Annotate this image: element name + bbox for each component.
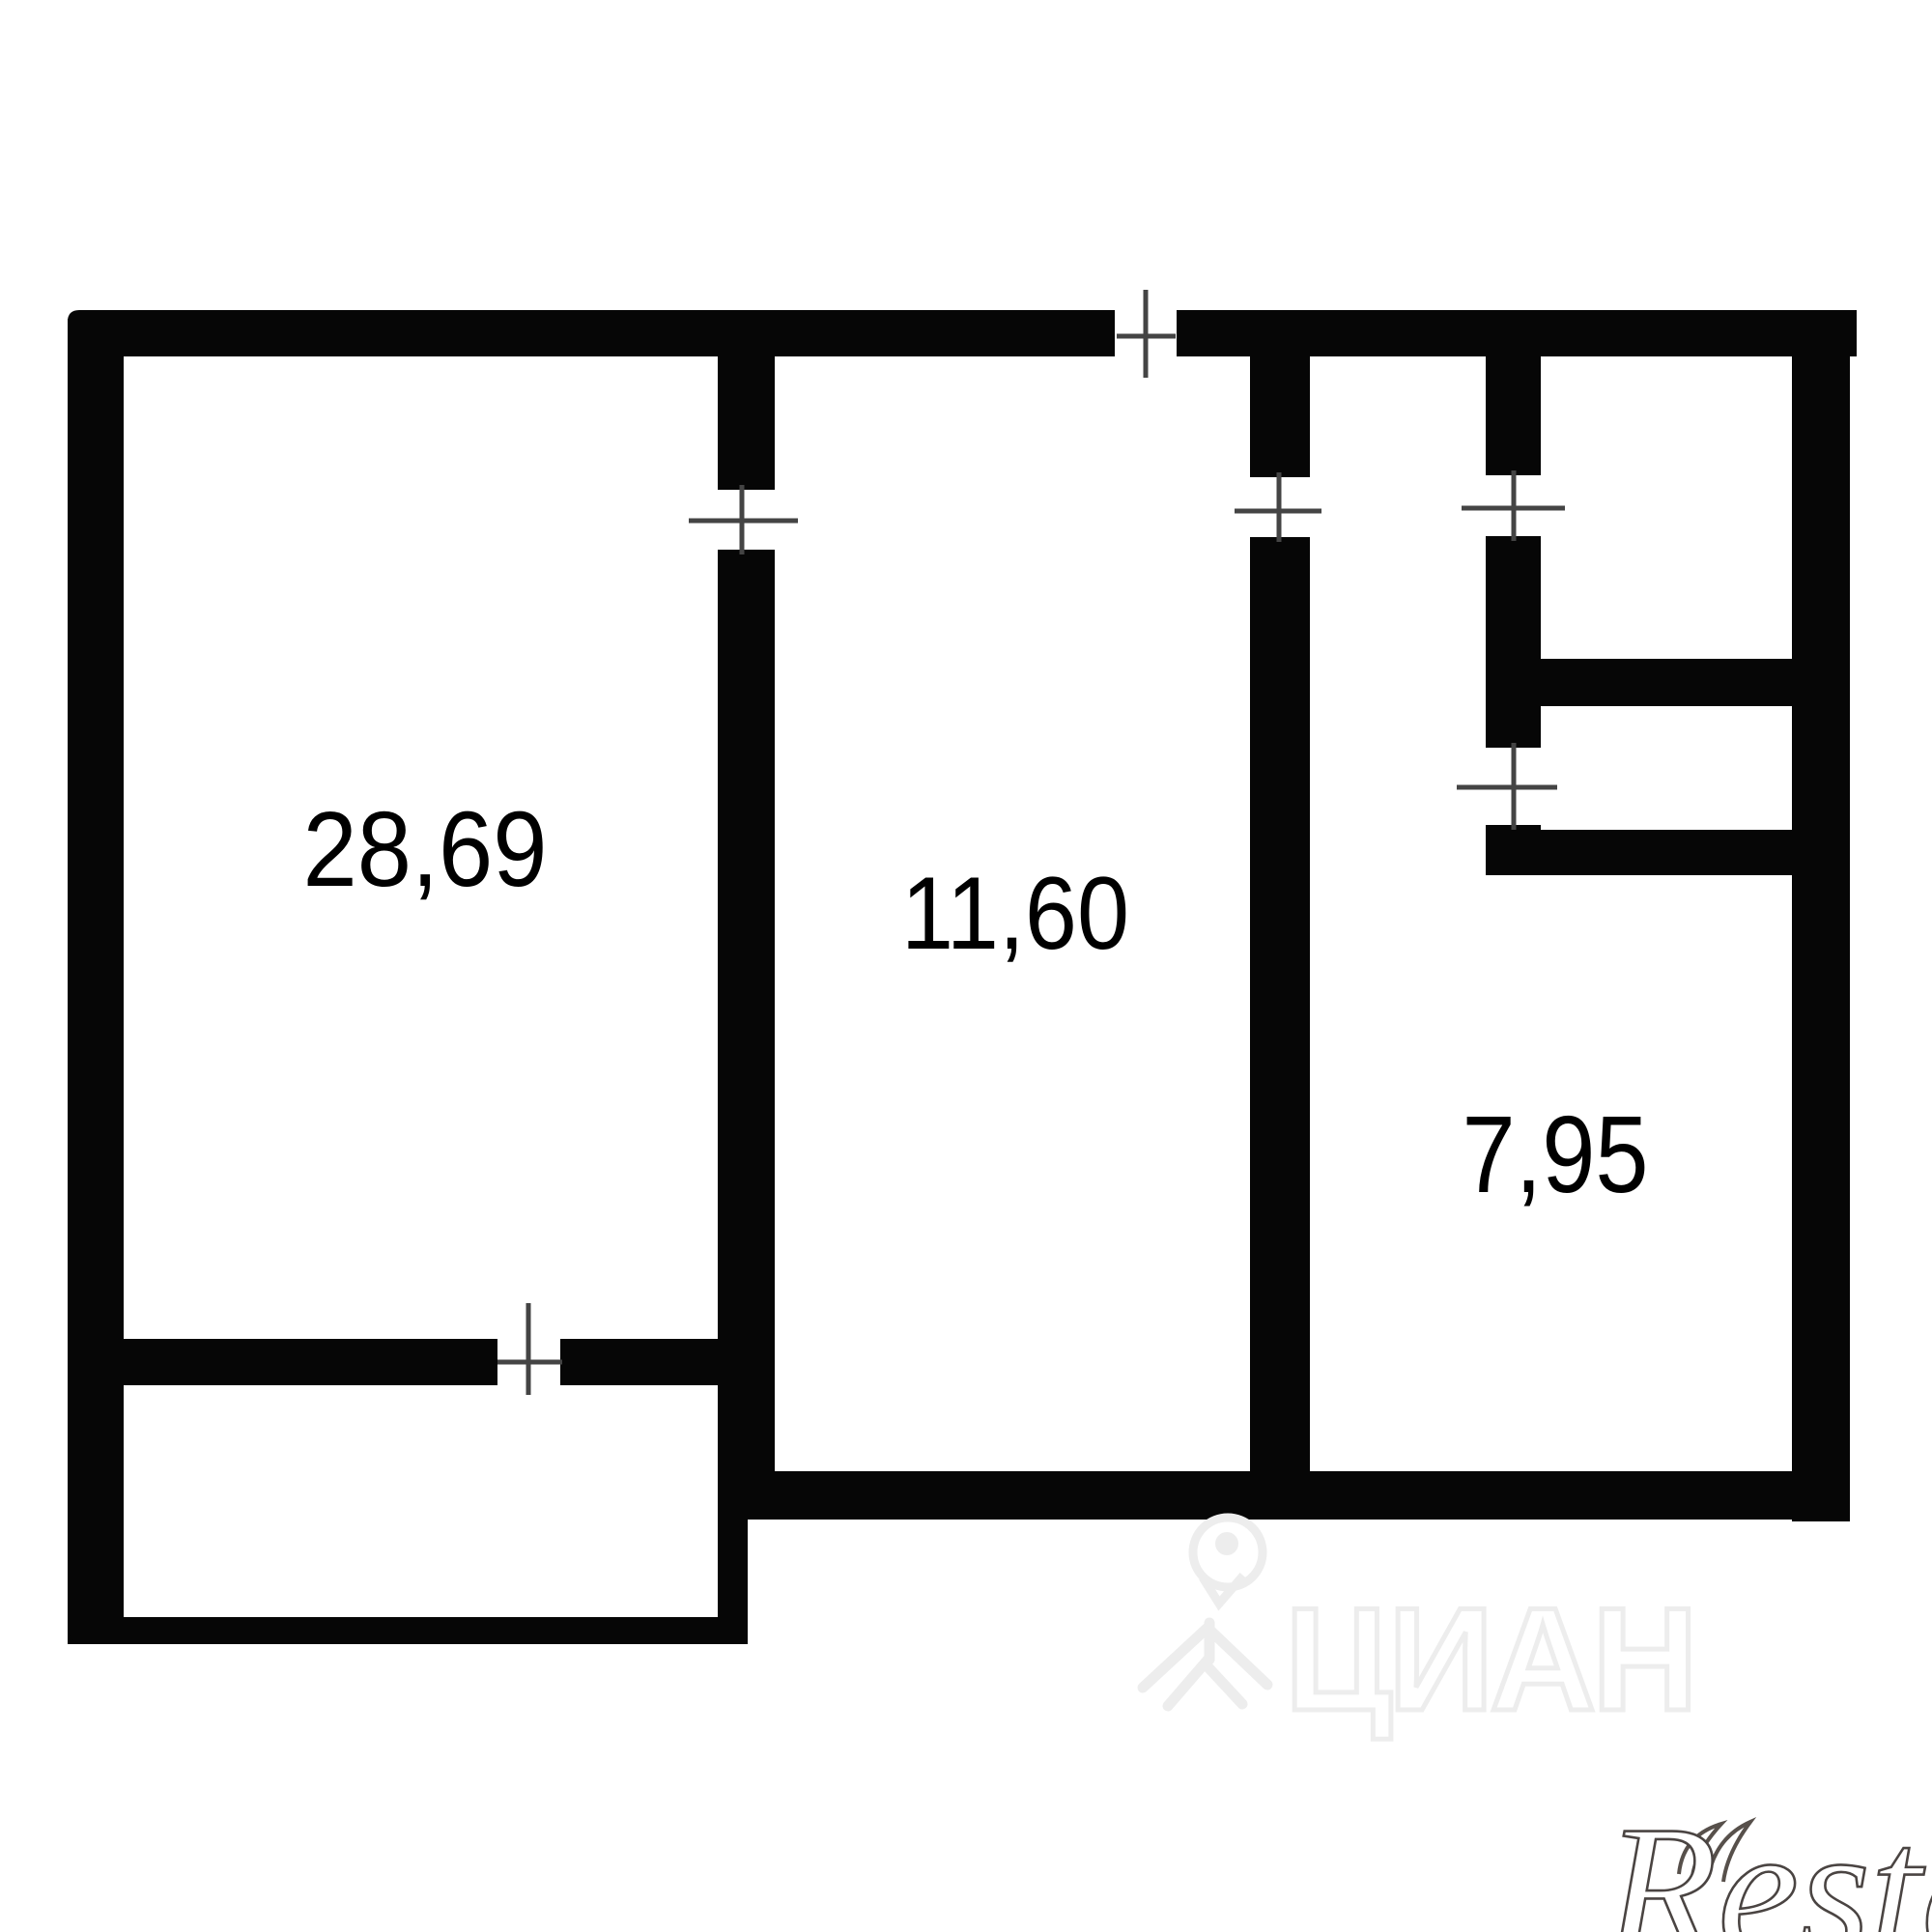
svg-text:28,69: 28,69 [303, 790, 548, 909]
svg-text:7,95: 7,95 [1463, 1094, 1649, 1215]
svg-text:ЦИАН: ЦИАН [1285, 1577, 1694, 1742]
svg-text:Restate: Restate [1604, 1789, 1932, 1932]
svg-text:11,60: 11,60 [901, 855, 1129, 971]
